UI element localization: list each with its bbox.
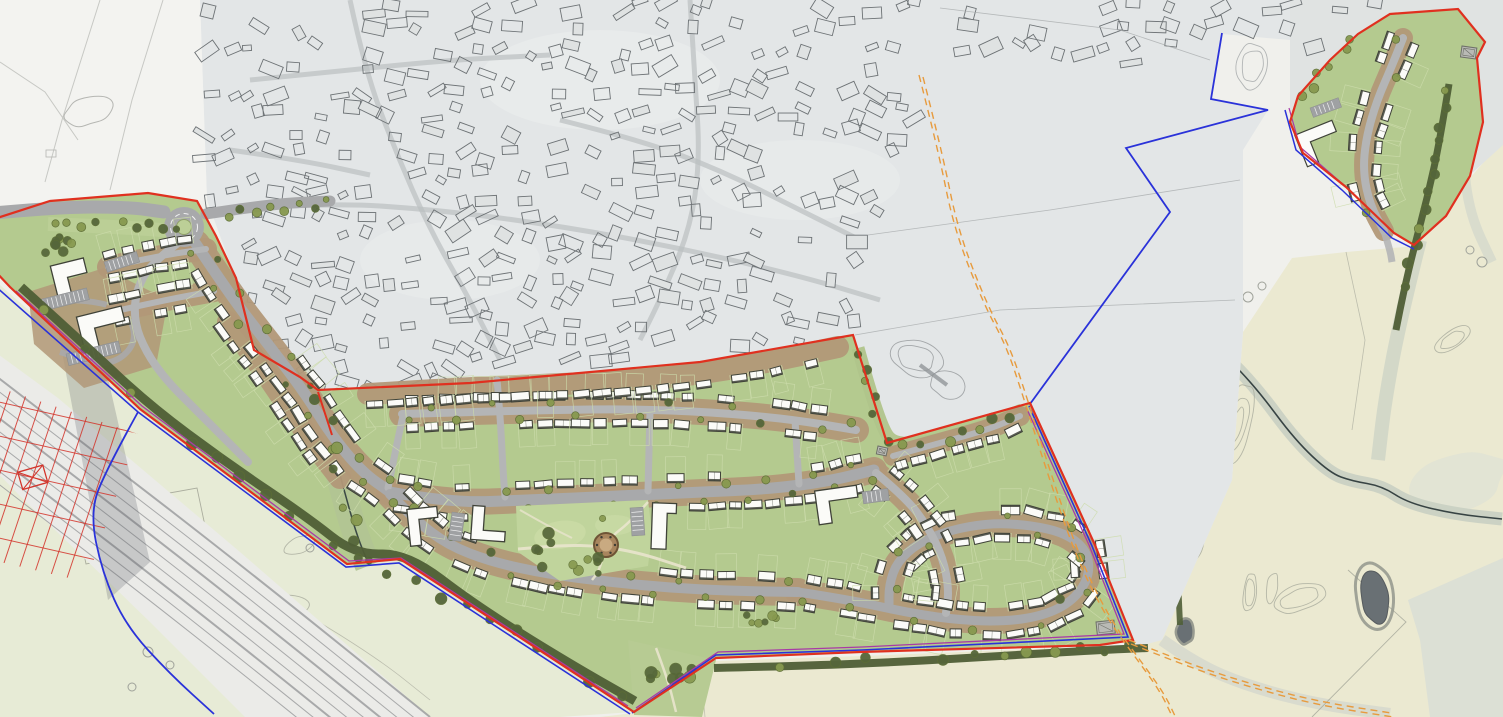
tree-icon <box>329 416 338 425</box>
house <box>593 388 612 398</box>
tree-icon <box>188 250 194 256</box>
tree-icon <box>675 483 681 489</box>
tree-icon <box>547 399 554 406</box>
tree-icon <box>698 417 704 423</box>
tree-icon <box>637 413 644 420</box>
tree-icon <box>211 285 217 291</box>
tree-icon <box>428 405 434 411</box>
tree-icon <box>756 596 765 605</box>
tree-icon <box>830 657 841 668</box>
tree-icon <box>252 208 261 217</box>
tree-icon <box>215 256 221 262</box>
tree-icon <box>968 626 977 635</box>
tree-icon <box>976 425 984 433</box>
tree-icon <box>544 486 552 494</box>
tree-icon <box>756 419 764 427</box>
tree-icon <box>1435 137 1443 145</box>
tree-icon <box>1441 87 1448 94</box>
tree-icon <box>1038 623 1044 629</box>
tree-icon <box>329 465 337 473</box>
tree-icon <box>749 620 755 626</box>
tree-icon <box>51 240 60 249</box>
tree-icon <box>77 223 86 232</box>
house <box>893 620 909 631</box>
tree-icon <box>958 427 966 435</box>
substation-pad <box>1460 46 1476 59</box>
tree-icon <box>627 572 635 580</box>
tree-icon <box>1001 652 1009 660</box>
tree-icon <box>1423 187 1432 196</box>
tree-icon <box>406 417 412 423</box>
house <box>557 391 568 400</box>
tree-icon <box>701 498 708 505</box>
tree-icon <box>537 562 547 572</box>
tree-icon <box>1421 205 1431 215</box>
tree-icon <box>926 543 933 550</box>
tree-icon <box>414 482 422 490</box>
tree-icon <box>516 415 524 423</box>
tree-icon <box>768 611 778 621</box>
tree-icon <box>910 617 917 624</box>
tree-icon <box>898 440 907 449</box>
tree-icon <box>1101 649 1108 656</box>
tree-icon <box>789 490 796 497</box>
tree-icon <box>755 619 763 627</box>
tree-icon <box>92 218 100 226</box>
tree-icon <box>359 478 366 485</box>
tree-icon <box>819 426 827 434</box>
tree-icon <box>52 220 59 227</box>
masterplan-canvas <box>0 0 1503 717</box>
house <box>785 429 801 439</box>
tree-icon <box>234 320 243 329</box>
tree-icon <box>722 479 731 488</box>
tree-icon <box>159 224 168 233</box>
tree-icon <box>547 539 555 547</box>
car-parking-row <box>630 507 645 536</box>
tree-icon <box>584 556 592 564</box>
tree-icon <box>531 545 541 555</box>
tree-icon <box>1056 595 1065 604</box>
tree-icon <box>1442 103 1451 112</box>
tree-icon <box>1084 589 1091 596</box>
house <box>478 394 489 403</box>
tree-icon <box>861 653 871 663</box>
masterplan-page <box>0 0 1503 717</box>
tree-icon <box>543 527 555 539</box>
house <box>956 601 968 611</box>
tree-icon <box>296 200 302 206</box>
tree-icon <box>489 400 495 406</box>
tree-icon <box>503 488 511 496</box>
tree-icon <box>593 552 604 563</box>
tree-icon <box>1392 36 1400 44</box>
tree-icon <box>600 586 606 592</box>
tree-icon <box>58 247 68 257</box>
tree-icon <box>569 560 578 569</box>
tree-icon <box>262 325 271 334</box>
house <box>950 629 961 638</box>
tree-icon <box>119 218 127 226</box>
tree-icon <box>355 453 364 462</box>
tree-icon <box>743 612 750 619</box>
tree-icon <box>676 578 682 584</box>
tree-icon <box>283 382 289 388</box>
tree-icon <box>41 249 49 257</box>
tree-icon <box>382 570 391 579</box>
tree-icon <box>971 650 978 657</box>
tree-icon <box>351 514 362 525</box>
tree-icon <box>938 654 949 665</box>
tree-icon <box>267 203 275 211</box>
tree-icon <box>848 462 854 468</box>
tree-icon <box>645 666 658 679</box>
tree-icon <box>280 207 289 216</box>
house <box>696 380 711 389</box>
tree-icon <box>1434 123 1443 132</box>
house <box>499 393 511 402</box>
tree-icon <box>1430 170 1440 180</box>
tree-icon <box>1430 155 1439 164</box>
tree-icon <box>729 403 736 410</box>
tree-icon <box>894 548 902 556</box>
tree-icon <box>331 442 343 454</box>
tree-icon <box>173 226 180 233</box>
tree-icon <box>784 577 792 585</box>
house <box>622 476 637 485</box>
tree-icon <box>386 476 394 484</box>
tree-icon <box>1392 73 1400 81</box>
tree-icon <box>869 476 877 484</box>
house <box>718 395 735 404</box>
tree-icon <box>745 497 752 504</box>
house <box>612 419 627 427</box>
tree-icon <box>599 515 605 521</box>
tree-icon <box>67 239 76 248</box>
tree-icon <box>572 412 579 419</box>
existing-fields-fill <box>0 0 207 215</box>
tree-icon <box>487 548 495 556</box>
tree-icon <box>508 573 514 579</box>
tree-icon <box>1414 224 1423 233</box>
tree-icon <box>133 223 142 232</box>
tree-icon <box>288 353 295 360</box>
tree-icon <box>869 410 876 417</box>
tree-icon <box>776 663 785 672</box>
tree-icon <box>893 585 901 593</box>
house <box>555 420 572 428</box>
tree-icon <box>452 416 460 424</box>
tree-icon <box>1401 282 1410 291</box>
tree-icon <box>649 591 656 598</box>
tree-icon <box>945 437 955 447</box>
tree-icon <box>339 504 346 511</box>
house <box>708 422 726 432</box>
tree-icon <box>145 219 154 228</box>
tree-icon <box>702 594 709 601</box>
tree-icon <box>311 205 319 213</box>
tree-icon <box>665 398 673 406</box>
tree-icon <box>389 498 398 507</box>
tree-icon <box>225 213 233 221</box>
tree-icon <box>1034 532 1040 538</box>
tree-icon <box>917 441 924 448</box>
tree-icon <box>236 205 244 213</box>
tree-icon <box>847 418 856 427</box>
tree-icon <box>63 219 71 227</box>
tree-icon <box>304 412 311 419</box>
tree-icon <box>762 619 768 625</box>
tree-icon <box>1005 413 1015 423</box>
house <box>765 499 780 509</box>
tree-icon <box>554 582 562 590</box>
substation-pad <box>1096 620 1115 635</box>
tree-icon <box>846 603 854 611</box>
tree-icon <box>1050 647 1060 657</box>
tree-icon <box>323 197 329 203</box>
tree-icon <box>799 598 806 605</box>
tree-icon <box>435 593 447 605</box>
tree-icon <box>810 471 817 478</box>
tree-icon <box>1005 513 1011 519</box>
tree-icon <box>762 476 770 484</box>
house <box>516 481 530 490</box>
substation-pad <box>876 446 887 456</box>
tree-icon <box>595 570 601 576</box>
house <box>804 603 816 613</box>
house <box>700 570 714 580</box>
tree-icon <box>1402 258 1413 269</box>
tree-icon <box>1309 84 1319 94</box>
tree-icon <box>212 452 223 463</box>
